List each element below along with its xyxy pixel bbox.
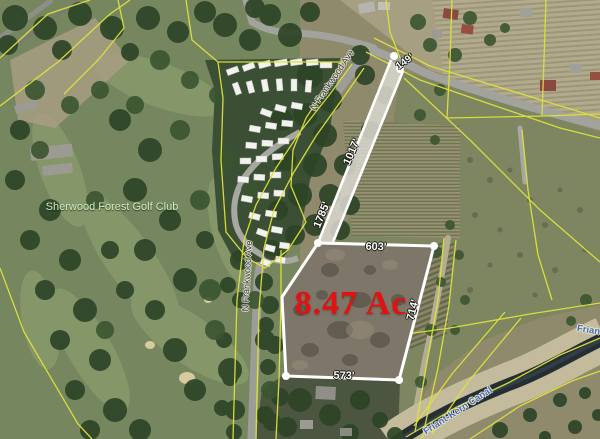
aerial-map-canvas: 8.47 Ac 149' 1017' 1785' 603' 714' 573' … [0,0,600,439]
map-imagery [0,0,600,439]
